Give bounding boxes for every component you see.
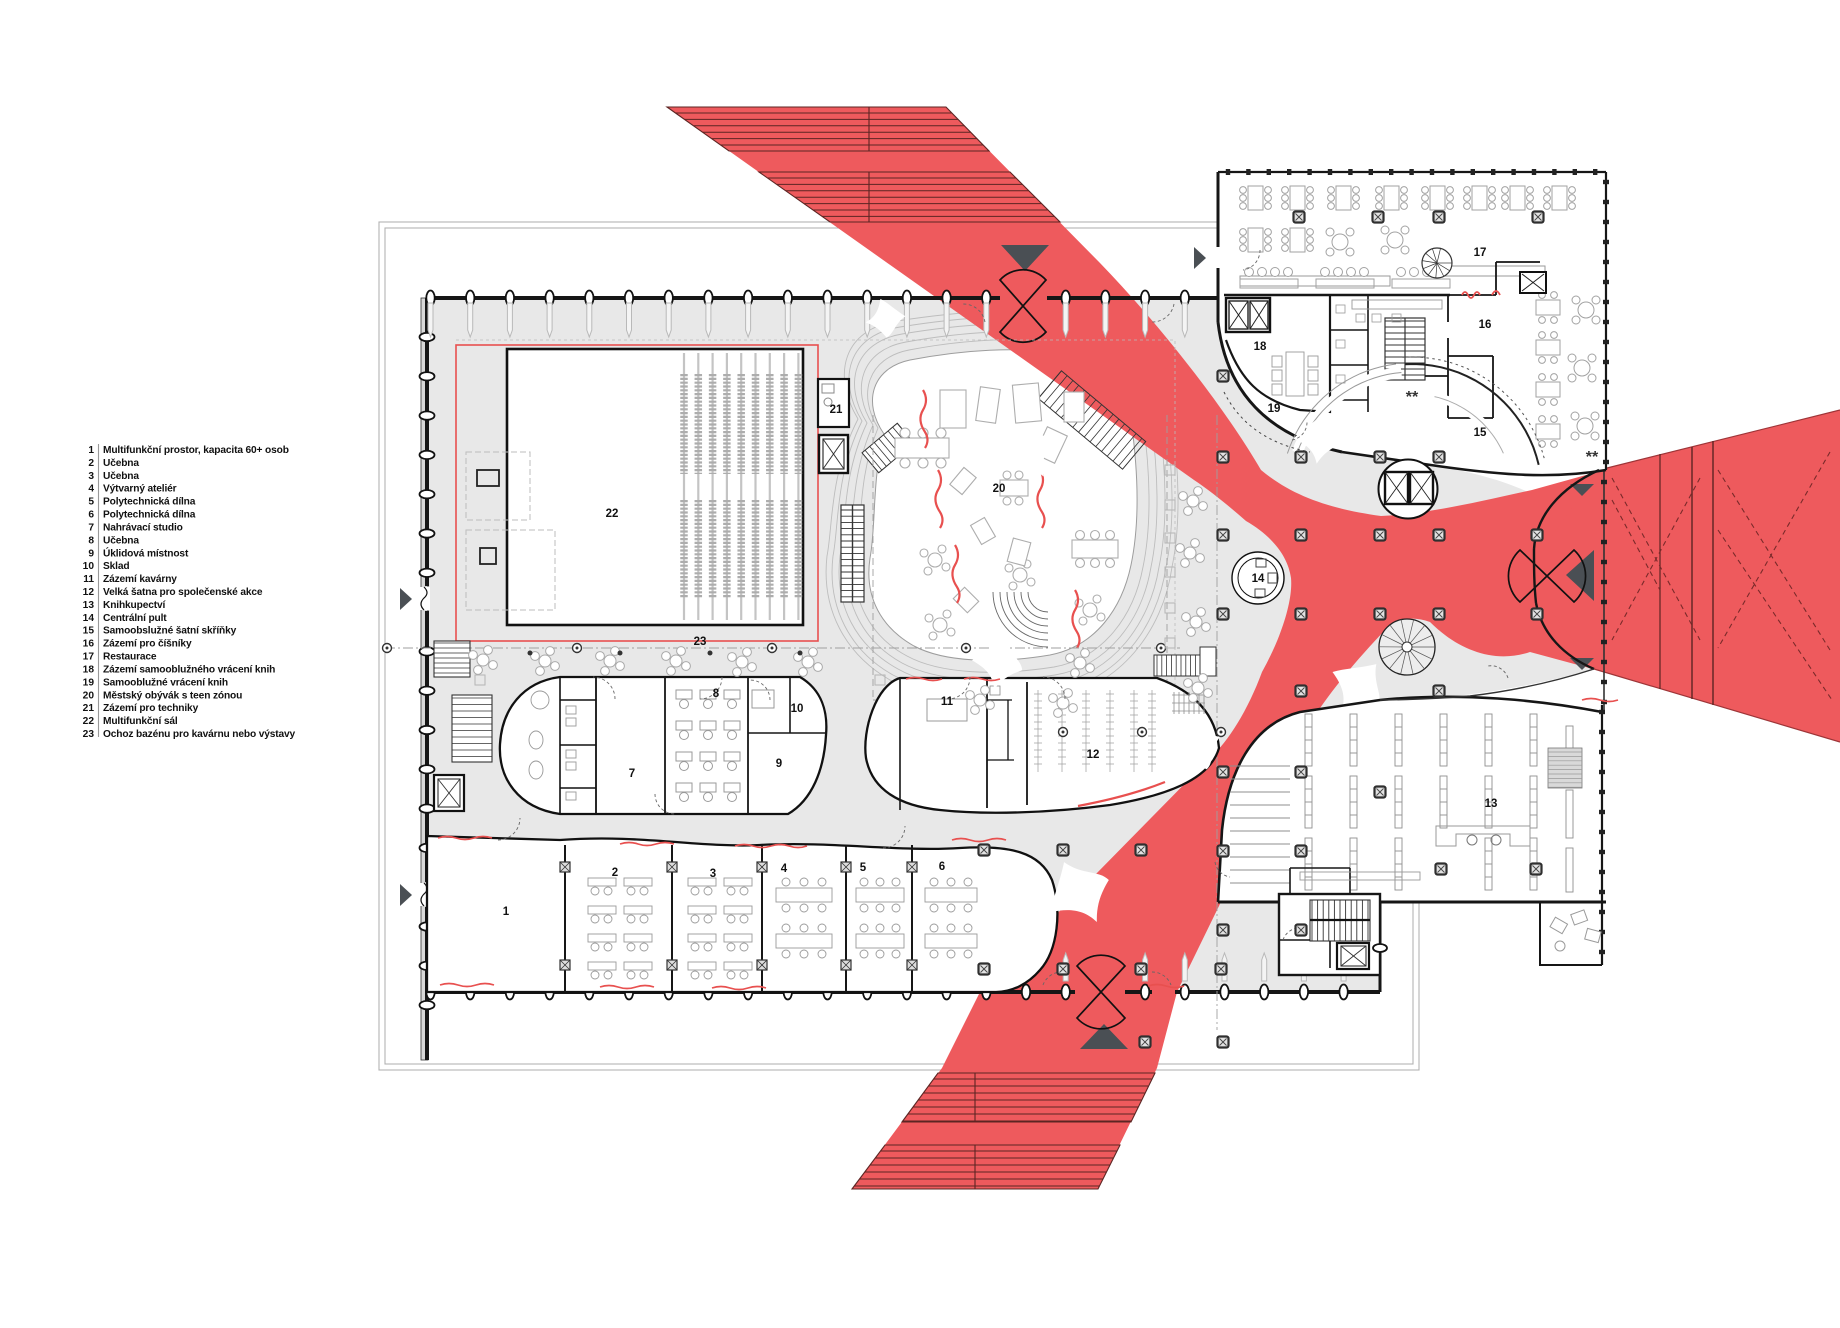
svg-text:15: 15 xyxy=(1474,427,1487,439)
svg-text:12: 12 xyxy=(1087,749,1100,761)
svg-text:7: 7 xyxy=(88,523,94,534)
svg-text:9: 9 xyxy=(776,758,782,770)
svg-text:13: 13 xyxy=(1485,798,1498,810)
svg-text:17: 17 xyxy=(1474,247,1487,259)
svg-text:Zázemí pro číšníky: Zázemí pro číšníky xyxy=(103,639,192,650)
svg-text:**: ** xyxy=(1586,449,1599,466)
svg-text:14: 14 xyxy=(1252,573,1265,585)
svg-text:19: 19 xyxy=(83,677,95,688)
svg-text:Ochoz bazénu pro kavárnu nebo: Ochoz bazénu pro kavárnu nebo výstavy xyxy=(103,729,296,740)
svg-text:Restaurace: Restaurace xyxy=(103,652,157,663)
svg-text:Polytechnická dílna: Polytechnická dílna xyxy=(103,510,196,521)
svg-text:Nahrávací studio: Nahrávací studio xyxy=(103,523,183,534)
svg-text:6: 6 xyxy=(939,861,945,873)
svg-text:10: 10 xyxy=(791,703,804,715)
svg-text:21: 21 xyxy=(83,703,95,714)
svg-text:18: 18 xyxy=(1254,341,1267,353)
svg-text:15: 15 xyxy=(83,626,95,637)
svg-text:Polytechnická dílna: Polytechnická dílna xyxy=(103,497,196,508)
svg-text:Multifunkční prostor, kapacita: Multifunkční prostor, kapacita 60+ osob xyxy=(103,445,289,456)
svg-text:11: 11 xyxy=(83,574,94,585)
svg-text:20: 20 xyxy=(83,690,95,701)
svg-text:**: ** xyxy=(1406,389,1419,406)
svg-text:7: 7 xyxy=(629,768,635,780)
svg-text:14: 14 xyxy=(83,613,95,624)
svg-text:5: 5 xyxy=(860,862,867,874)
svg-text:10: 10 xyxy=(83,561,95,572)
svg-text:2: 2 xyxy=(88,458,94,469)
svg-text:Úklidová místnost: Úklidová místnost xyxy=(103,546,189,559)
svg-text:20: 20 xyxy=(993,483,1006,495)
svg-text:13: 13 xyxy=(83,600,95,611)
svg-text:Zázemí pro techniky: Zázemí pro techniky xyxy=(103,703,199,714)
svg-text:Výtvarný ateliér: Výtvarný ateliér xyxy=(103,484,177,495)
svg-text:2: 2 xyxy=(612,867,618,879)
svg-text:Učebna: Učebna xyxy=(103,471,139,482)
svg-text:Městský obývák s teen zónou: Městský obývák s teen zónou xyxy=(103,690,242,701)
svg-text:Velká šatna pro společenské ak: Velká šatna pro společenské akce xyxy=(103,587,263,598)
svg-text:22: 22 xyxy=(83,716,95,727)
svg-text:1: 1 xyxy=(88,445,94,456)
svg-text:Centrální pult: Centrální pult xyxy=(103,613,167,624)
svg-text:21: 21 xyxy=(830,404,843,416)
svg-text:17: 17 xyxy=(83,652,95,663)
svg-text:18: 18 xyxy=(83,665,95,676)
svg-text:16: 16 xyxy=(83,639,95,650)
svg-text:19: 19 xyxy=(1268,403,1281,415)
svg-text:Samooblužné vrácení knih: Samooblužné vrácení knih xyxy=(103,677,228,688)
svg-text:9: 9 xyxy=(88,548,94,559)
svg-text:23: 23 xyxy=(83,729,95,740)
svg-text:Multifunkční sál: Multifunkční sál xyxy=(103,716,178,727)
svg-text:5: 5 xyxy=(88,497,94,508)
svg-text:Zázemí kavárny: Zázemí kavárny xyxy=(103,574,177,585)
svg-text:Sklad: Sklad xyxy=(103,561,129,572)
svg-text:Knihkupectví: Knihkupectví xyxy=(103,600,166,611)
svg-text:11: 11 xyxy=(941,696,954,708)
svg-text:Učebna: Učebna xyxy=(103,535,139,546)
svg-text:Učebna: Učebna xyxy=(103,458,139,469)
svg-text:1: 1 xyxy=(503,906,510,918)
svg-text:8: 8 xyxy=(88,535,94,546)
svg-text:Samoobslužné šatní skříňky: Samoobslužné šatní skříňky xyxy=(103,626,237,637)
svg-text:22: 22 xyxy=(606,508,619,520)
svg-text:Zázemí samooblužného vrácení k: Zázemí samooblužného vrácení knih xyxy=(103,665,275,676)
svg-text:6: 6 xyxy=(88,510,94,521)
svg-text:3: 3 xyxy=(88,471,94,482)
svg-text:16: 16 xyxy=(1479,319,1492,331)
svg-text:12: 12 xyxy=(83,587,95,598)
svg-text:4: 4 xyxy=(88,484,94,495)
svg-text:4: 4 xyxy=(781,863,788,875)
svg-text:8: 8 xyxy=(713,688,720,700)
svg-text:3: 3 xyxy=(710,868,716,880)
svg-text:23: 23 xyxy=(694,636,707,648)
